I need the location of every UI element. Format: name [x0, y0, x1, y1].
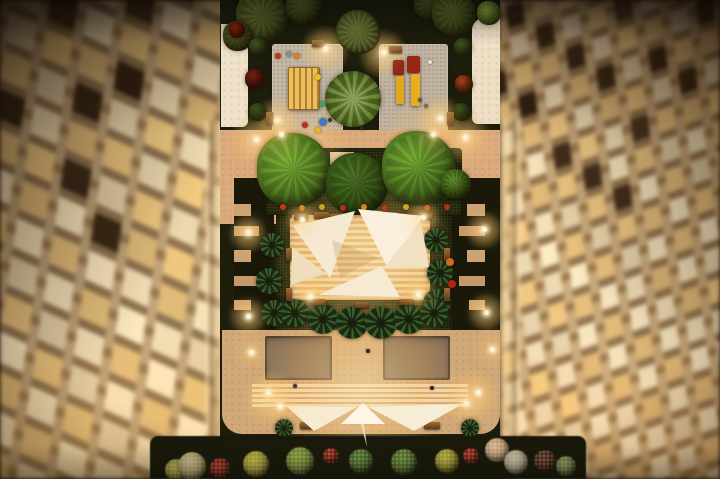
- flower-cluster: [210, 458, 230, 478]
- flower-cluster: [178, 452, 206, 479]
- flower-cluster: [323, 448, 339, 464]
- flower-garden-band: [0, 0, 720, 479]
- flower-cluster: [349, 449, 373, 473]
- flower-cluster: [534, 450, 556, 472]
- flower-cluster: [435, 449, 459, 473]
- photo-stage: [0, 0, 720, 479]
- flower-cluster: [391, 449, 417, 475]
- flower-cluster: [286, 447, 314, 475]
- flower-cluster: [463, 448, 479, 464]
- flower-cluster: [243, 451, 269, 477]
- flower-cluster: [504, 450, 528, 474]
- flower-cluster: [556, 456, 576, 476]
